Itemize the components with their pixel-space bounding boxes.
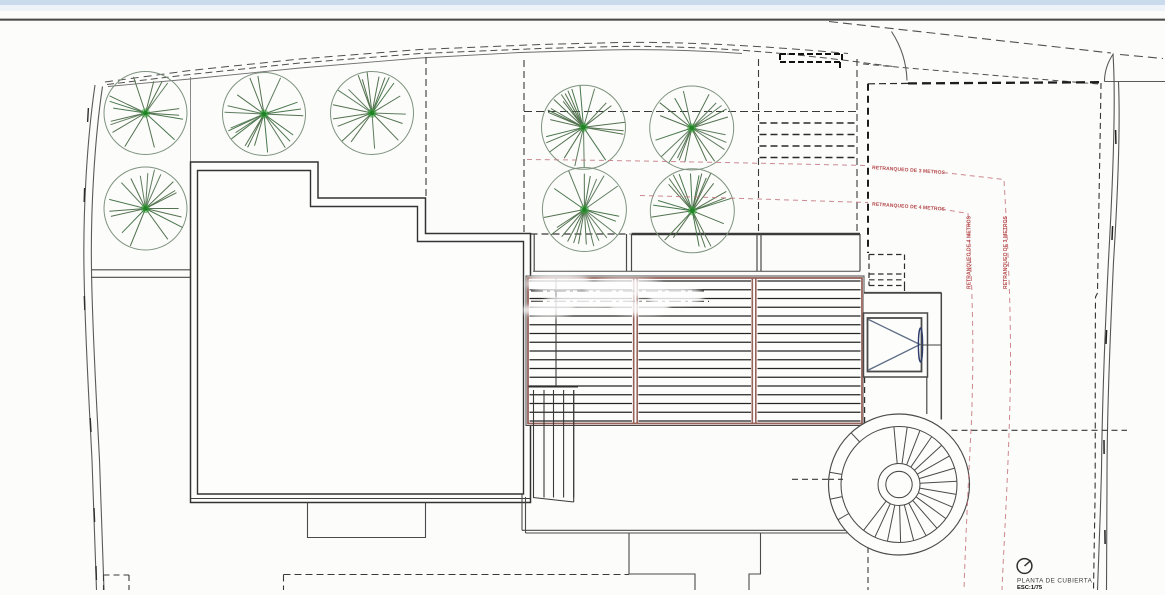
svg-text:PLANTA DE CUBIERTA: PLANTA DE CUBIERTA bbox=[1017, 578, 1093, 585]
svg-text:RETRANQUEO DE 3 METROS: RETRANQUEO DE 3 METROS bbox=[1003, 215, 1009, 289]
svg-text:RETRANQUEO DE 4 METROS: RETRANQUEO DE 4 METROS bbox=[967, 215, 973, 289]
svg-text:ESC:1/75: ESC:1/75 bbox=[1017, 585, 1043, 590]
